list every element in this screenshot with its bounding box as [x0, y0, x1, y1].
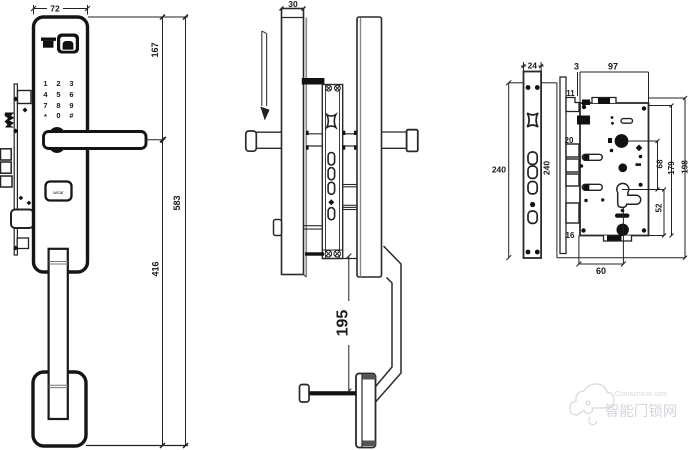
svg-text:416: 416 — [151, 261, 161, 276]
svg-text:179: 179 — [667, 161, 676, 175]
svg-text:16: 16 — [566, 231, 575, 240]
svg-text:60: 60 — [596, 266, 606, 276]
svg-text:72: 72 — [50, 4, 60, 14]
svg-text:167: 167 — [150, 42, 160, 57]
svg-text:智能门锁网: 智能门锁网 — [605, 403, 678, 420]
svg-text:wicar: wicar — [53, 190, 64, 195]
svg-text:97: 97 — [608, 62, 618, 72]
svg-text:0: 0 — [56, 111, 60, 120]
svg-text:9: 9 — [69, 101, 73, 110]
svg-text:20: 20 — [565, 136, 574, 145]
svg-text:240: 240 — [542, 161, 552, 175]
svg-text:*: * — [44, 112, 47, 121]
svg-text:240: 240 — [492, 165, 506, 175]
svg-text:3: 3 — [574, 62, 579, 72]
svg-text:6: 6 — [69, 90, 73, 99]
svg-text:24: 24 — [528, 61, 538, 71]
svg-text:195: 195 — [335, 310, 352, 337]
svg-text:Chinaznsuo.com: Chinaznsuo.com — [615, 391, 667, 398]
svg-text:1: 1 — [43, 79, 47, 88]
svg-text:8: 8 — [56, 101, 60, 110]
svg-text:7: 7 — [43, 101, 47, 110]
svg-text:198: 198 — [681, 160, 690, 174]
svg-text:11: 11 — [566, 89, 575, 98]
svg-text:2: 2 — [56, 79, 60, 88]
svg-text:68: 68 — [656, 159, 665, 168]
svg-text:30: 30 — [288, 0, 298, 9]
svg-text:52: 52 — [655, 203, 664, 212]
svg-text:5: 5 — [56, 90, 60, 99]
svg-text:583: 583 — [172, 195, 182, 210]
svg-text:3: 3 — [69, 79, 73, 88]
